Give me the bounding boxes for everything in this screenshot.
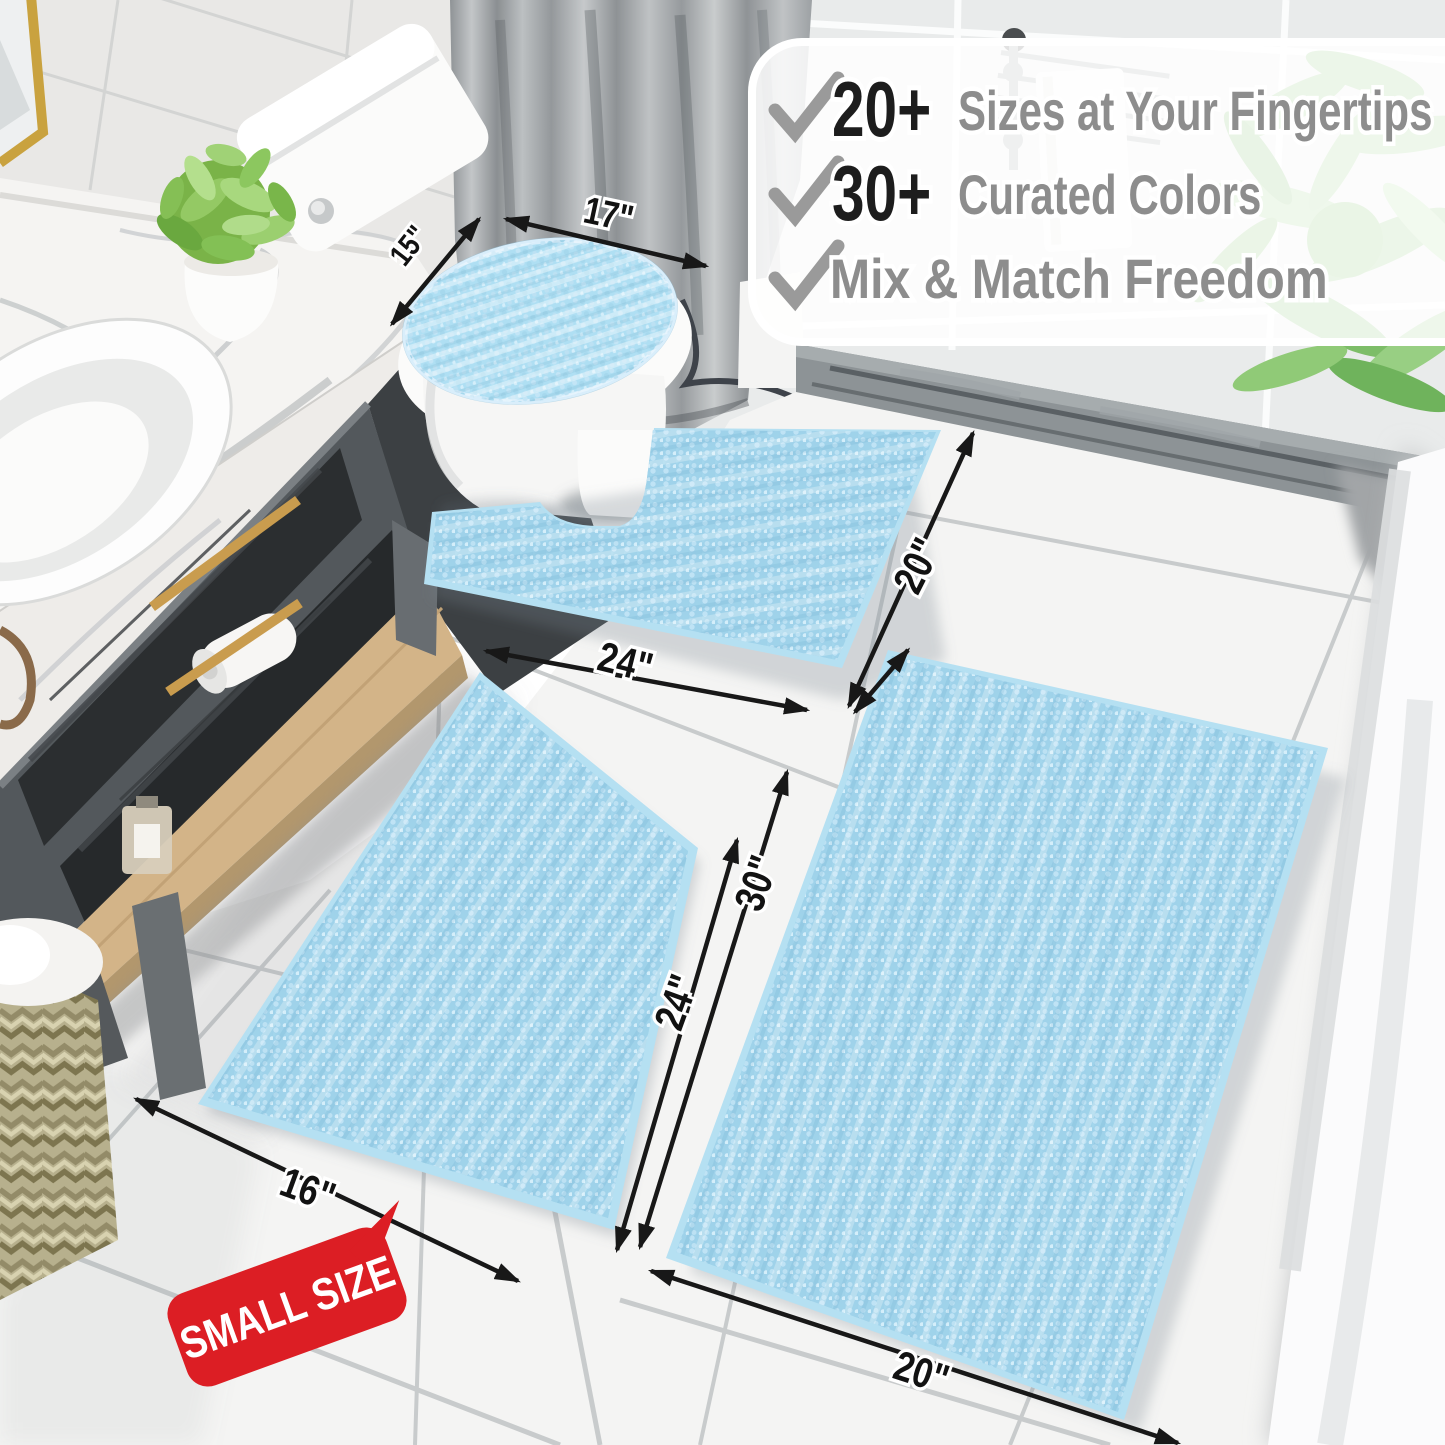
svg-text:Mix & Match Freedom: Mix & Match Freedom [830, 249, 1328, 311]
svg-text:Curated Colors: Curated Colors [958, 164, 1261, 226]
svg-text:Sizes at Your Fingertips: Sizes at Your Fingertips [958, 80, 1432, 142]
svg-text:30+: 30+ [832, 150, 931, 237]
svg-text:20+: 20+ [832, 66, 931, 153]
